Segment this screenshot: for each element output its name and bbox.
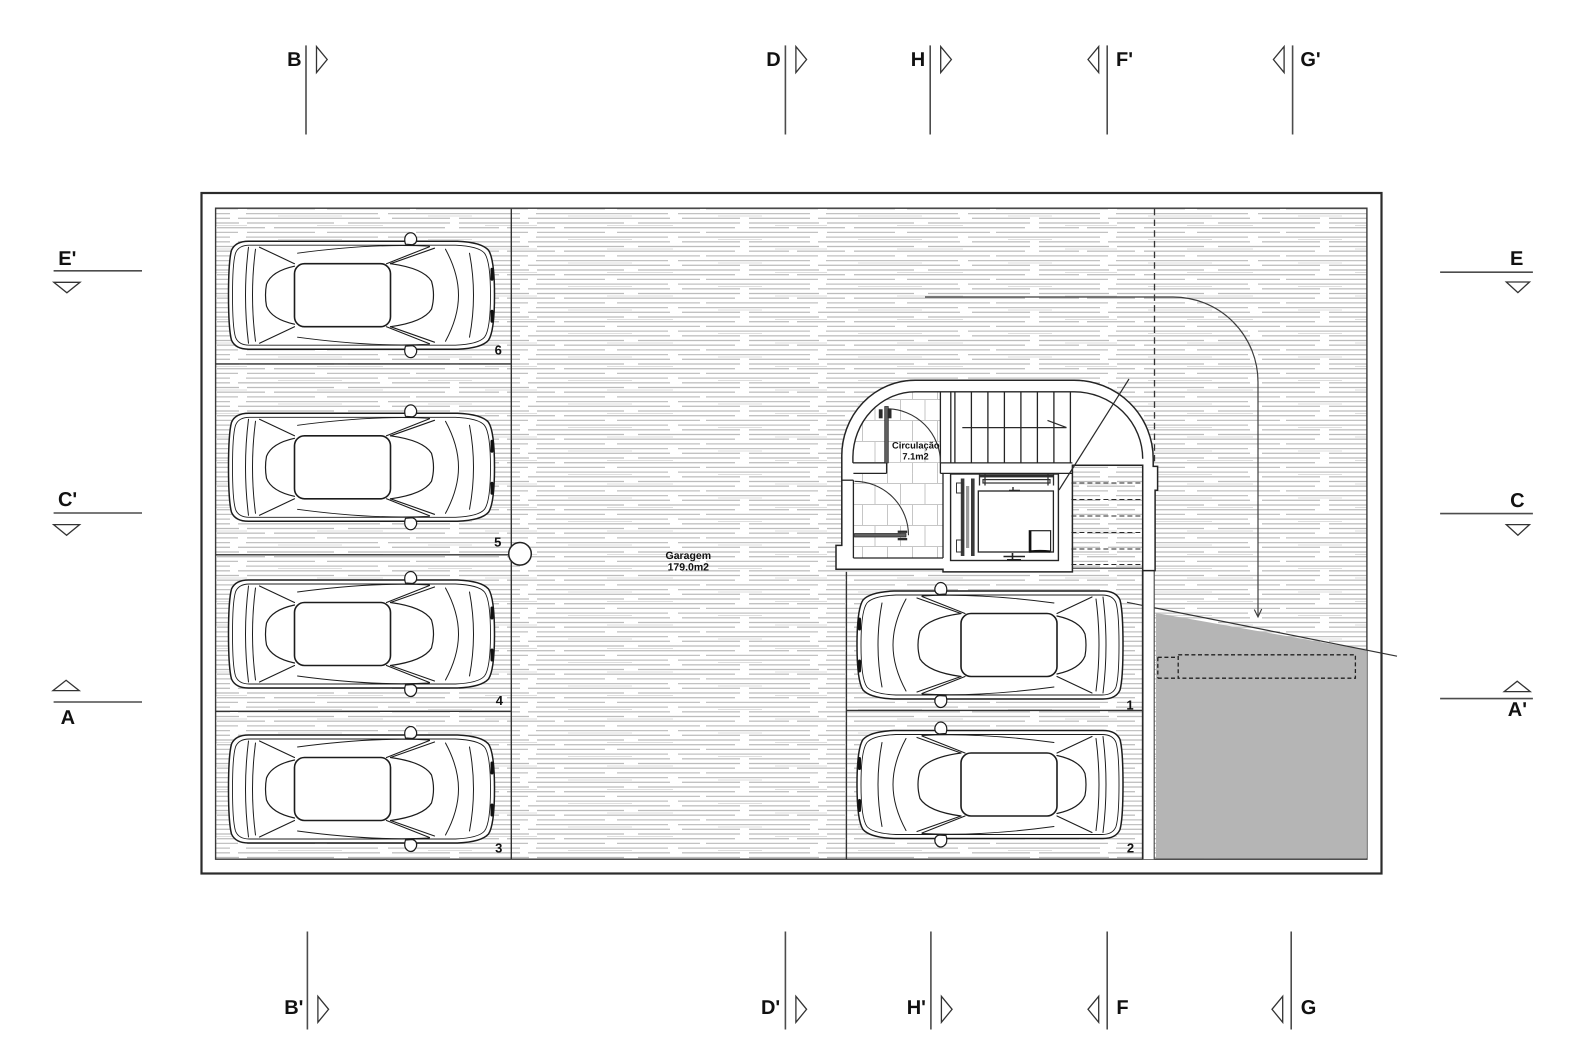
svg-text:E': E' [58,248,76,270]
svg-text:179.0m2: 179.0m2 [668,562,710,574]
svg-text:F: F [1116,997,1128,1019]
svg-text:4: 4 [496,693,504,708]
svg-text:E: E [1510,248,1523,270]
svg-text:A: A [61,707,75,729]
svg-text:D: D [766,49,780,71]
svg-text:A': A' [1508,699,1527,721]
svg-text:C: C [1510,490,1524,512]
svg-text:2: 2 [1127,841,1134,856]
svg-text:Garagem: Garagem [666,550,712,562]
svg-text:Circulação: Circulação [892,441,940,451]
svg-text:5: 5 [494,534,501,549]
svg-text:6: 6 [495,342,502,357]
svg-text:B': B' [284,997,303,1019]
svg-text:D': D' [761,997,780,1019]
svg-text:H: H [911,49,925,71]
svg-text:3: 3 [495,841,502,856]
svg-text:H': H' [907,997,926,1019]
svg-text:B: B [287,49,301,71]
svg-text:7.1m2: 7.1m2 [902,452,928,462]
svg-text:F': F' [1116,49,1133,71]
svg-text:G': G' [1300,49,1320,71]
svg-text:C': C' [58,489,77,511]
svg-text:1: 1 [1126,698,1133,713]
svg-text:G: G [1301,997,1317,1019]
